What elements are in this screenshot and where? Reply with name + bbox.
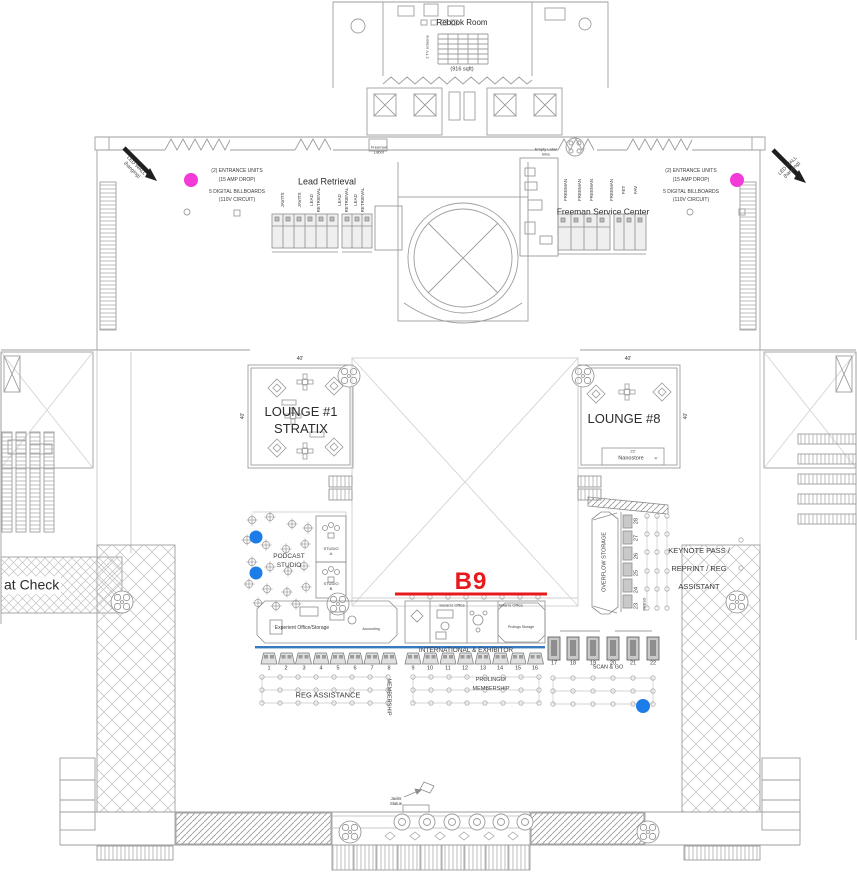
lead-retrieval-title: Lead Retrieval <box>298 176 356 187</box>
entrance-units-right-label: (2) ENTRANCE UNITS (15 AMP DROP) <box>665 167 716 185</box>
lounge1-dim-left: 40' <box>240 413 246 420</box>
studio-b-label: STUDIO B <box>323 581 338 591</box>
experient-office-label: Experient Office/Storage <box>275 625 329 631</box>
blue-dot-bottom-right <box>636 699 650 713</box>
coat-check-label: at Check <box>2 576 61 594</box>
counter-number: 6 <box>353 666 356 673</box>
billboards-left-label: 5 DIGITAL BILLBOARDS (110V CIRCUIT) <box>209 188 265 204</box>
booth-label: FET <box>621 186 627 195</box>
press-counter-number: 26 <box>634 553 641 559</box>
kiosk-number: 18 <box>570 661 576 668</box>
podcast-studio-label: PODCAST STUDIO <box>273 552 304 570</box>
booth-label: FREEMAN <box>609 179 615 201</box>
counter-number: 5 <box>336 666 339 673</box>
booth-label: JAVITS <box>297 193 303 208</box>
kiosk-number: 17 <box>551 661 557 668</box>
booth-label: LEAD <box>309 194 315 206</box>
membership-vertical-label: MEMBERSHIP <box>385 679 392 716</box>
brians-office-label: Brian's Office <box>499 603 523 608</box>
studio-a-label: STUDIO A <box>323 546 338 556</box>
booth-label: LEAD <box>337 194 343 206</box>
prolingo-membership-label: PROLINGO/ MEMBERSHIP <box>473 676 510 694</box>
billboards-right-label: 5 DIGITAL BILLBOARDS (110V CIRCUIT) <box>663 188 719 204</box>
javits-statue-label: Javits Statue <box>390 796 402 806</box>
freeman-labor-label: Freeman Labor <box>371 145 387 154</box>
booth-label: RETRIEVAL <box>344 188 350 213</box>
prolingo-storage-label: Prolingo Storage <box>508 625 534 629</box>
entrance-units-left-label: (2) ENTRANCE UNITS (15 AMP DROP) <box>211 167 262 185</box>
blue-dot-podcast-2 <box>250 567 263 580</box>
counter-number: 1 <box>267 666 270 673</box>
lead-retrieval-booths <box>272 206 402 252</box>
press-counter-number: 27 <box>634 535 641 541</box>
magenta-dot-right <box>730 173 744 187</box>
counter-number: 2 <box>284 666 287 673</box>
booth-label: FREEMAN <box>563 179 569 201</box>
international-exhibitor-label: INTERNATIONAL & EXHIBITOR <box>419 647 513 655</box>
annotation-dots <box>184 173 744 713</box>
counter-number: 15 <box>515 666 521 673</box>
counter-number: 7 <box>370 666 373 673</box>
press-counter-number: 25 <box>634 570 641 576</box>
booth-label: FREEMAN <box>589 179 595 201</box>
counter-number: 9 <box>411 666 414 673</box>
counter-number: 11 <box>445 666 451 673</box>
booth-label: FREEMAN <box>577 179 583 201</box>
nanostore-width: 22' <box>630 449 635 454</box>
lounge8-dim-right: 40' <box>683 413 689 420</box>
floorplan-linework <box>0 0 857 872</box>
press-counter-number: 28 <box>634 518 641 524</box>
javits-statue <box>403 782 434 812</box>
scan-go-kiosks <box>548 631 659 660</box>
accounting-label: Accounting <box>362 627 379 631</box>
booth-label: JAVITS <box>280 193 286 208</box>
empty-label-bins-label: Empty Label Bins <box>535 147 557 156</box>
stair-lattice-wings <box>97 545 760 812</box>
booth-b9-label: B9 <box>455 568 488 596</box>
tv-screens-label: 2 TV screens <box>425 35 430 59</box>
counter-number: 12 <box>462 666 468 673</box>
counter-number: 13 <box>480 666 486 673</box>
keynote-pass-label: KEYNOTE PASS / REPRINT / REG ASSISTANT <box>668 542 730 596</box>
booth-label: RETRIEVAL <box>316 188 322 213</box>
counter-number: 8 <box>387 666 390 673</box>
rebook-room-label: Rebook Room <box>436 18 487 28</box>
nanostore-label: Nanostore <box>618 456 643 463</box>
escalators <box>329 476 668 514</box>
counter-number: 14 <box>497 666 503 673</box>
booth-label: FAV <box>633 186 639 194</box>
floor-plan: Rebook Room (916 sqft) 2 TV screens Free… <box>0 0 857 872</box>
booth-label: LEAD <box>353 194 359 206</box>
nanostore-depth: 4' <box>655 456 658 461</box>
rebook-sqft-label: (916 sqft) <box>450 67 473 74</box>
reg-assistance-label: REG ASSISTANCE <box>296 690 361 699</box>
counter-number: 4 <box>319 666 322 673</box>
press-counter-number: 24 <box>634 587 641 593</box>
counter-number: 10 <box>427 666 433 673</box>
lounge1-title: LOUNGE #1 <box>265 404 338 420</box>
lounge8-dim-top: 40' <box>625 356 632 362</box>
rotunda <box>398 162 528 323</box>
kiosk-number: 21 <box>630 661 636 668</box>
magenta-dot-left <box>184 173 198 187</box>
blue-dot-podcast-1 <box>250 531 263 544</box>
counter-number: 3 <box>302 666 305 673</box>
scan-go-label: SCAN & GO <box>593 665 624 672</box>
freeman-service-center-title: Freeman Service Center <box>557 207 650 218</box>
lounge8-title: LOUNGE #8 <box>588 411 661 427</box>
susans-office-label: Susan's Office <box>439 603 465 608</box>
lounge1-sponsor: STRATIX <box>274 421 328 437</box>
overflow-storage-label: OVERFLOW STORAGE <box>602 532 609 592</box>
booth-label: RETRIEVAL <box>360 188 366 213</box>
press-label: PRESS <box>643 598 648 611</box>
press-counter-number: 23 <box>634 603 641 609</box>
lounge1-dim-top: 40' <box>297 356 304 362</box>
kiosk-number: 22 <box>650 661 656 668</box>
counter-number: 16 <box>532 666 538 673</box>
